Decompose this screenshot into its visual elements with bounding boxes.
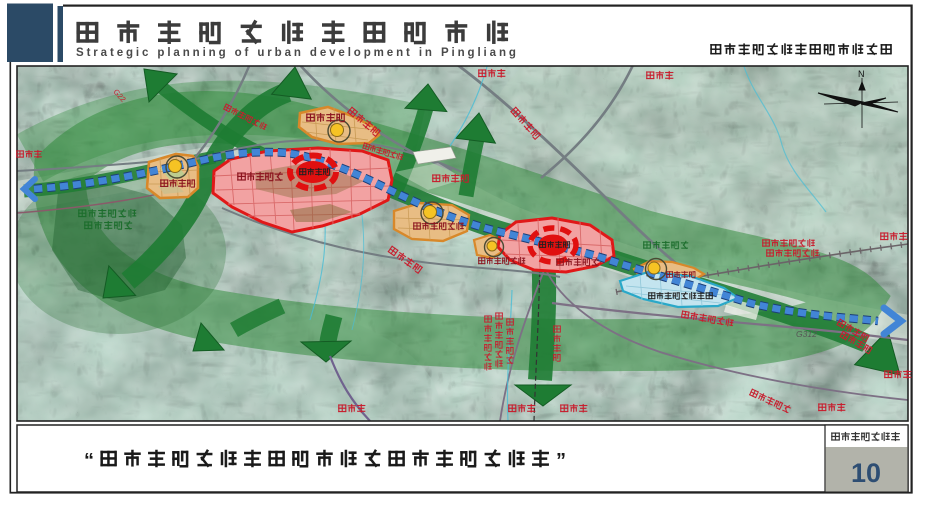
svg-text:Strategic planning of urban de: Strategic planning of urban development … (76, 47, 519, 59)
svg-text:N: N (858, 69, 865, 79)
svg-text:10: 10 (851, 458, 881, 488)
svg-text:”: ” (556, 450, 566, 472)
svg-text:G312: G312 (796, 329, 817, 339)
svg-text:“: “ (84, 450, 94, 472)
